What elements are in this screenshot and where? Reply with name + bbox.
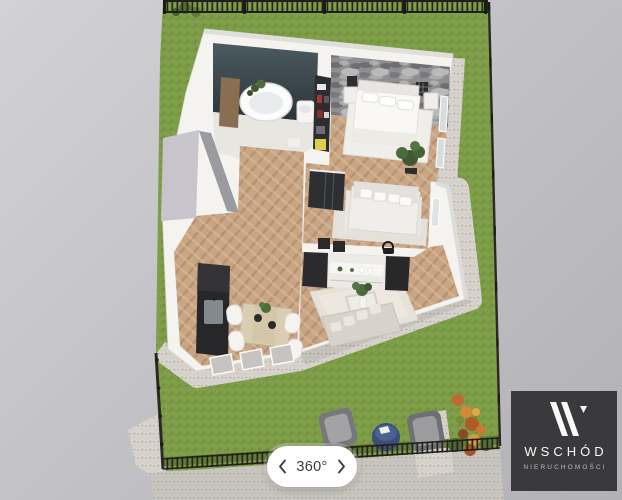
bedroom: [329, 55, 450, 182]
bedroom-window-2: [436, 138, 445, 168]
bathroom-cabinet: [219, 77, 240, 128]
rotate-360-button[interactable]: 360°: [267, 446, 357, 487]
chevron-left-icon[interactable]: [278, 459, 287, 474]
second-room-window: [431, 198, 440, 227]
nightstand-right: [424, 93, 438, 109]
double-bed: [352, 80, 420, 147]
bathroom-sink: [297, 101, 314, 123]
bathroom: [213, 43, 318, 162]
chevron-right-icon[interactable]: [337, 459, 346, 474]
wardrobe: [308, 170, 345, 211]
brand-subtitle: NIERUCHOMOŚCI: [523, 464, 606, 471]
bedroom-window: [439, 96, 448, 132]
wschod-monogram-icon: [540, 402, 588, 436]
wall-art-left: [347, 76, 357, 88]
brand-name: WSCHÓD: [524, 444, 607, 459]
kitchen-counter: [196, 263, 230, 357]
bathtub: [240, 83, 292, 121]
hall-shelf-unit: [313, 75, 331, 152]
dining-table: [239, 302, 292, 348]
sofa: [344, 181, 422, 236]
second-room: [303, 163, 440, 252]
rotation-label: 360°: [296, 459, 327, 475]
exterior-wall-shaded: [161, 130, 199, 221]
fence-top: [163, 0, 488, 14]
brand-logo: WSCHÓD NIERUCHOMOŚCI: [511, 391, 617, 491]
floorplan-viewer[interactable]: 360° WSCHÓD NIERUCHOMOŚCI: [0, 0, 622, 500]
